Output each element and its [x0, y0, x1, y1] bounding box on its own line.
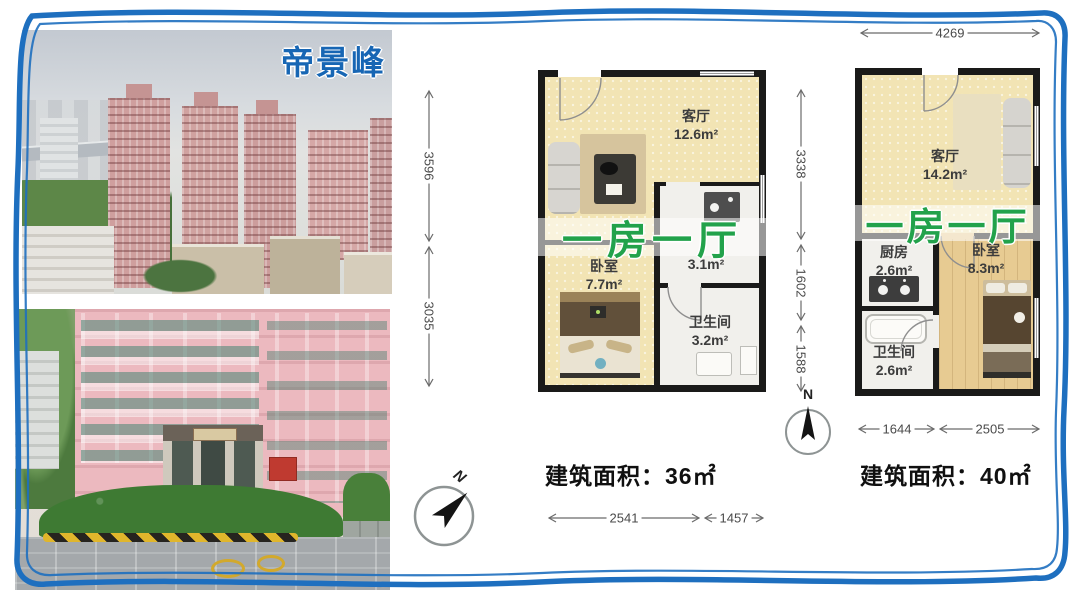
burner	[878, 285, 888, 295]
wall	[538, 385, 766, 392]
bed-device	[590, 306, 606, 318]
compass-n-label: N	[794, 386, 822, 402]
listing-image: 帝景峰	[0, 0, 1080, 601]
road-marking	[211, 559, 245, 578]
bed-sheet	[983, 344, 1031, 352]
knob	[883, 279, 886, 282]
burner	[900, 285, 910, 295]
room-label-bath: 卫生间3.2m²	[668, 314, 752, 349]
room-label-living: 客厅12.6m²	[654, 108, 738, 143]
dim-label: 3596	[422, 149, 437, 184]
compass-36-icon	[415, 486, 474, 545]
overlay-banner: 一房一厅	[534, 218, 770, 256]
street-photo	[15, 309, 390, 590]
knob	[728, 197, 733, 202]
room-label-bath: 卫生间2.6m²	[857, 344, 931, 379]
road-marking	[257, 555, 285, 572]
entrance-sign	[193, 428, 237, 441]
bed	[560, 292, 640, 378]
floorplan-40: 客厅14.2m² 厨房2.6m² 卫生间2.6m² 卧室8.3m² 一房一厅	[855, 68, 1040, 396]
dim-label: 3035	[422, 299, 437, 334]
interior-wall	[933, 233, 939, 389]
trees-foreground	[140, 258, 220, 294]
bathtub	[865, 314, 927, 344]
bath-door-opening	[933, 315, 939, 348]
sofa	[548, 142, 580, 214]
bath-door-opening	[668, 283, 701, 288]
low-rise-3	[344, 252, 392, 294]
window	[1033, 106, 1040, 166]
window	[700, 70, 754, 77]
white-building-bottom-left	[22, 226, 114, 294]
stove	[869, 276, 919, 302]
bed-cushion	[1014, 312, 1025, 323]
interior-wall	[862, 306, 933, 311]
window	[759, 175, 766, 223]
window	[1033, 298, 1040, 358]
pink-slab-far-right	[370, 118, 392, 263]
bed-bench	[560, 373, 640, 378]
entry-door-opening	[558, 70, 601, 77]
overlay-banner: 一房一厅	[852, 205, 1043, 241]
bath-sink	[696, 352, 732, 376]
kitchen-opening	[666, 182, 700, 186]
dim-label: 1588	[794, 342, 809, 377]
dim-label: 3338	[794, 147, 809, 182]
aerial-photo: 帝景峰	[22, 30, 392, 294]
pillow	[1008, 283, 1027, 293]
headboard	[560, 292, 640, 302]
dim-label: 1644	[880, 422, 915, 437]
pillow	[567, 339, 594, 354]
bed-blanket	[983, 352, 1031, 372]
dim-label: 1457	[717, 511, 752, 526]
pillow	[986, 283, 1005, 293]
table-object	[600, 162, 618, 175]
sofa	[1003, 98, 1031, 188]
wall	[855, 389, 1040, 396]
compass-n-label: N	[450, 466, 469, 486]
entry-door-opening	[922, 68, 958, 75]
floorplan-36: 客厅12.6m² 卧室7.7m² 3.1m² 卫生间3.2m² 一房一厅	[538, 70, 766, 392]
low-rise-2	[270, 236, 340, 294]
curb-yellow-black	[43, 533, 298, 542]
dim-label: 2541	[607, 511, 642, 526]
project-title: 帝景峰	[281, 36, 386, 84]
dim-label: 2505	[973, 422, 1008, 437]
room-label-living: 客厅14.2m²	[905, 148, 985, 183]
bed-bench	[983, 372, 1031, 378]
pillow	[605, 339, 632, 354]
right-hedge	[343, 473, 390, 527]
tub-inner	[870, 319, 922, 339]
red-banner	[269, 457, 297, 481]
bath-fixture	[740, 346, 757, 375]
indicator-dot	[596, 310, 600, 314]
building-area-36: 建筑面积：36㎡	[545, 457, 717, 491]
coffee-table	[594, 154, 636, 204]
knob	[903, 279, 906, 282]
dim-label: 4269	[933, 26, 968, 41]
compass-40-icon	[786, 406, 830, 454]
building-area-40: 建筑面积：40㎡	[860, 457, 1032, 491]
bed-cushion	[595, 358, 606, 369]
pavement	[15, 537, 390, 590]
dim-label: 1602	[794, 266, 809, 301]
table-paper	[606, 184, 622, 195]
bed	[983, 280, 1031, 378]
white-building-left	[15, 351, 59, 469]
